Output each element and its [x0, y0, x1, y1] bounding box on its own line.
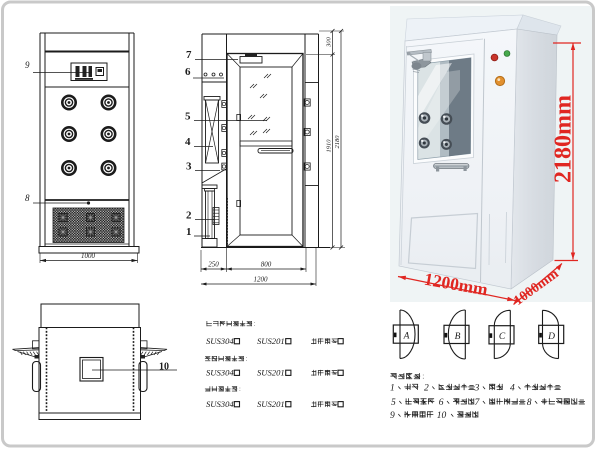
svg-text:10: 10: [159, 362, 169, 373]
svg-text:6: 6: [185, 66, 191, 78]
svg-text:7: 7: [186, 49, 192, 61]
svg-text:SUS304: SUS304: [206, 399, 234, 409]
svg-text:1200: 1200: [254, 276, 269, 284]
svg-text:8: 8: [527, 398, 532, 408]
svg-text:800: 800: [261, 261, 272, 269]
svg-text:A: A: [403, 332, 410, 342]
svg-text:3: 3: [474, 384, 480, 394]
svg-text:B: B: [455, 332, 461, 342]
svg-text:1000: 1000: [81, 252, 96, 260]
svg-text:250: 250: [208, 261, 219, 269]
svg-text:C: C: [499, 332, 506, 342]
svg-text:10: 10: [437, 411, 447, 421]
svg-text:D: D: [547, 332, 555, 342]
svg-text:SUS304: SUS304: [206, 368, 234, 378]
svg-text:5: 5: [185, 111, 191, 123]
svg-text:2180: 2180: [334, 135, 341, 149]
svg-text:2: 2: [424, 384, 429, 394]
svg-text:4: 4: [510, 384, 515, 394]
svg-text:SUS304: SUS304: [206, 336, 234, 346]
svg-text:1: 1: [186, 226, 192, 238]
svg-text:6: 6: [439, 398, 444, 408]
svg-text:9: 9: [25, 60, 30, 70]
svg-text:SUS201: SUS201: [257, 336, 285, 346]
svg-text:8: 8: [25, 193, 30, 203]
svg-text:9: 9: [390, 411, 395, 421]
svg-text:3: 3: [186, 161, 192, 173]
svg-text:1910: 1910: [326, 139, 333, 153]
svg-text:2: 2: [186, 210, 192, 222]
svg-text:300: 300: [326, 36, 333, 48]
svg-text:1: 1: [390, 384, 395, 394]
svg-text:SUS201: SUS201: [257, 399, 285, 409]
svg-text:5: 5: [391, 398, 396, 408]
svg-text:2180mm: 2180mm: [551, 95, 577, 183]
svg-text:SUS201: SUS201: [257, 368, 285, 378]
svg-text:4: 4: [185, 136, 191, 148]
